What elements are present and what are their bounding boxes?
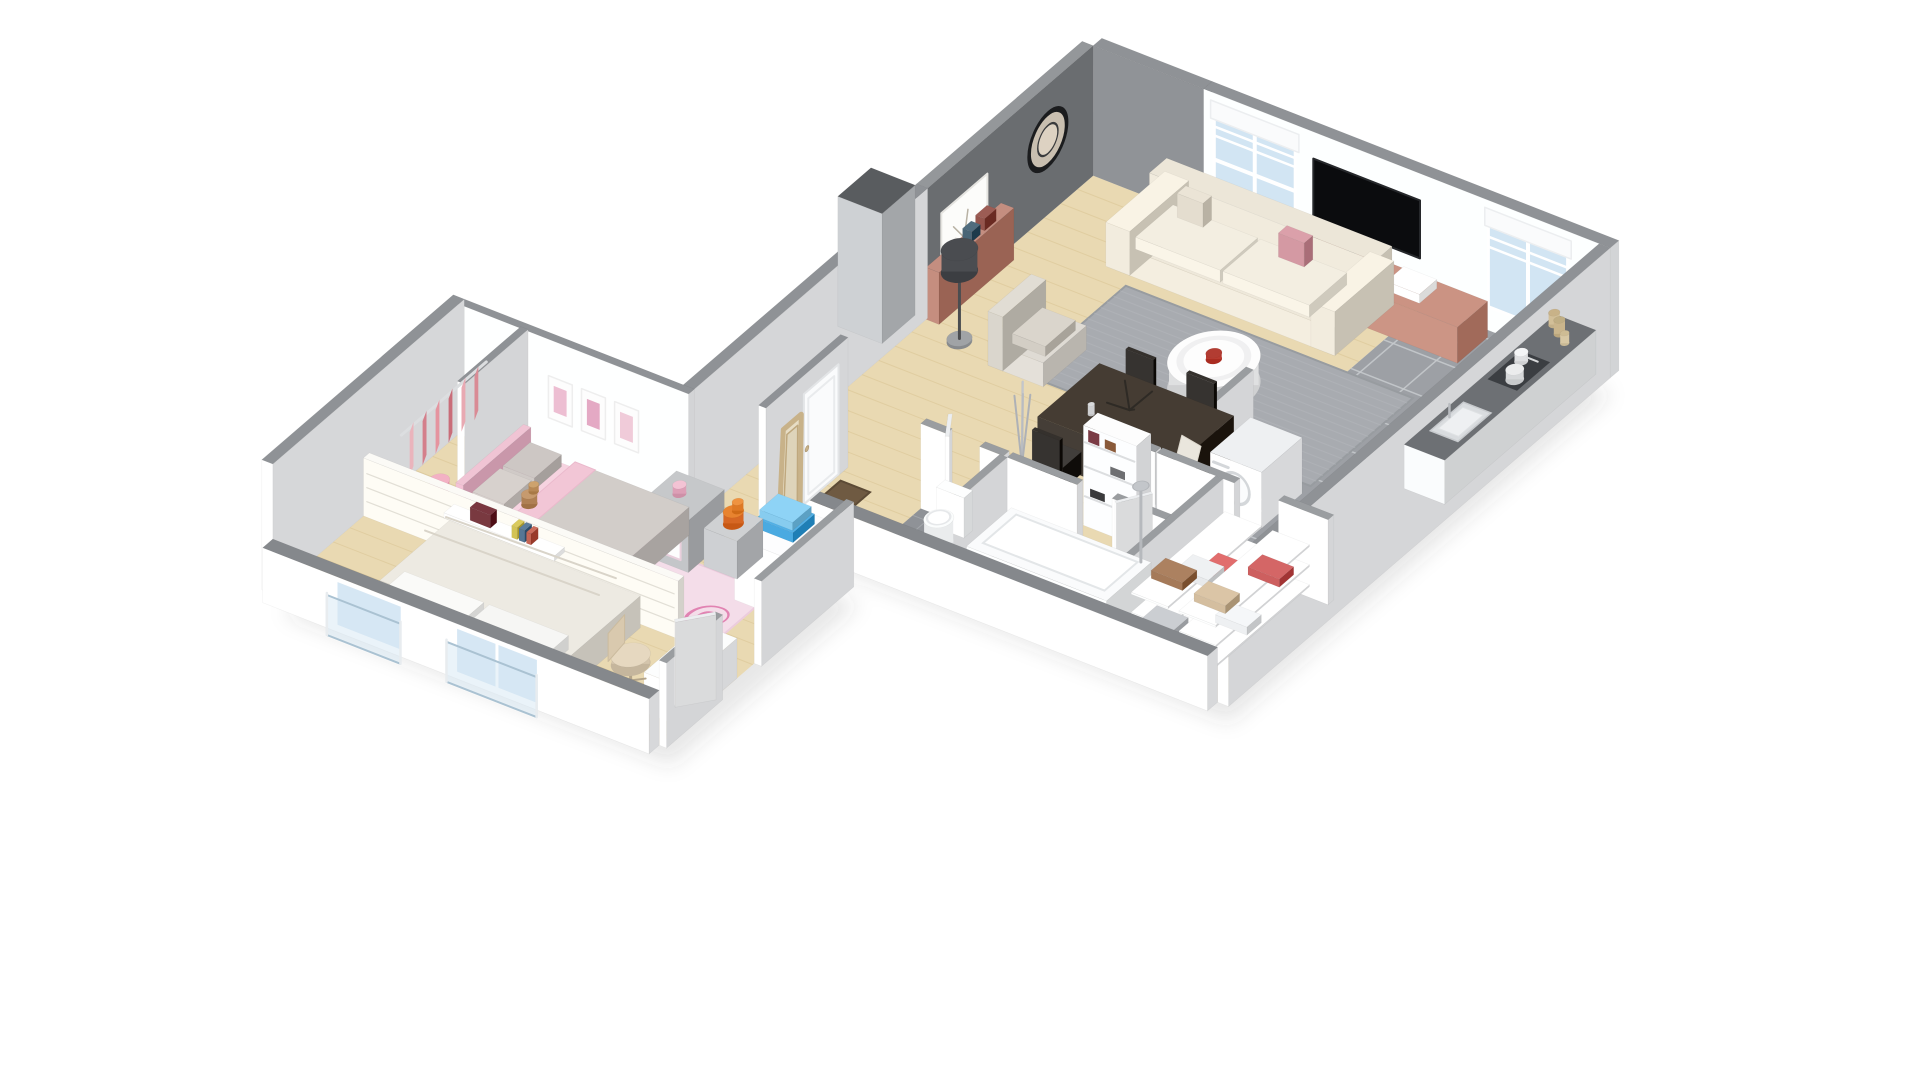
floorplan-svg: amijo@: [0, 0, 1920, 1080]
kids-art-print3: [620, 412, 633, 443]
kids-art-print1: [554, 386, 567, 417]
master-door-leaf: [675, 612, 716, 708]
floorplan-world: amijo@: [262, 38, 1619, 765]
duct-shaft: [838, 168, 915, 344]
kids-art-print2: [587, 399, 600, 430]
apartment-floorplan-3d: amijo@: [0, 0, 1920, 1080]
